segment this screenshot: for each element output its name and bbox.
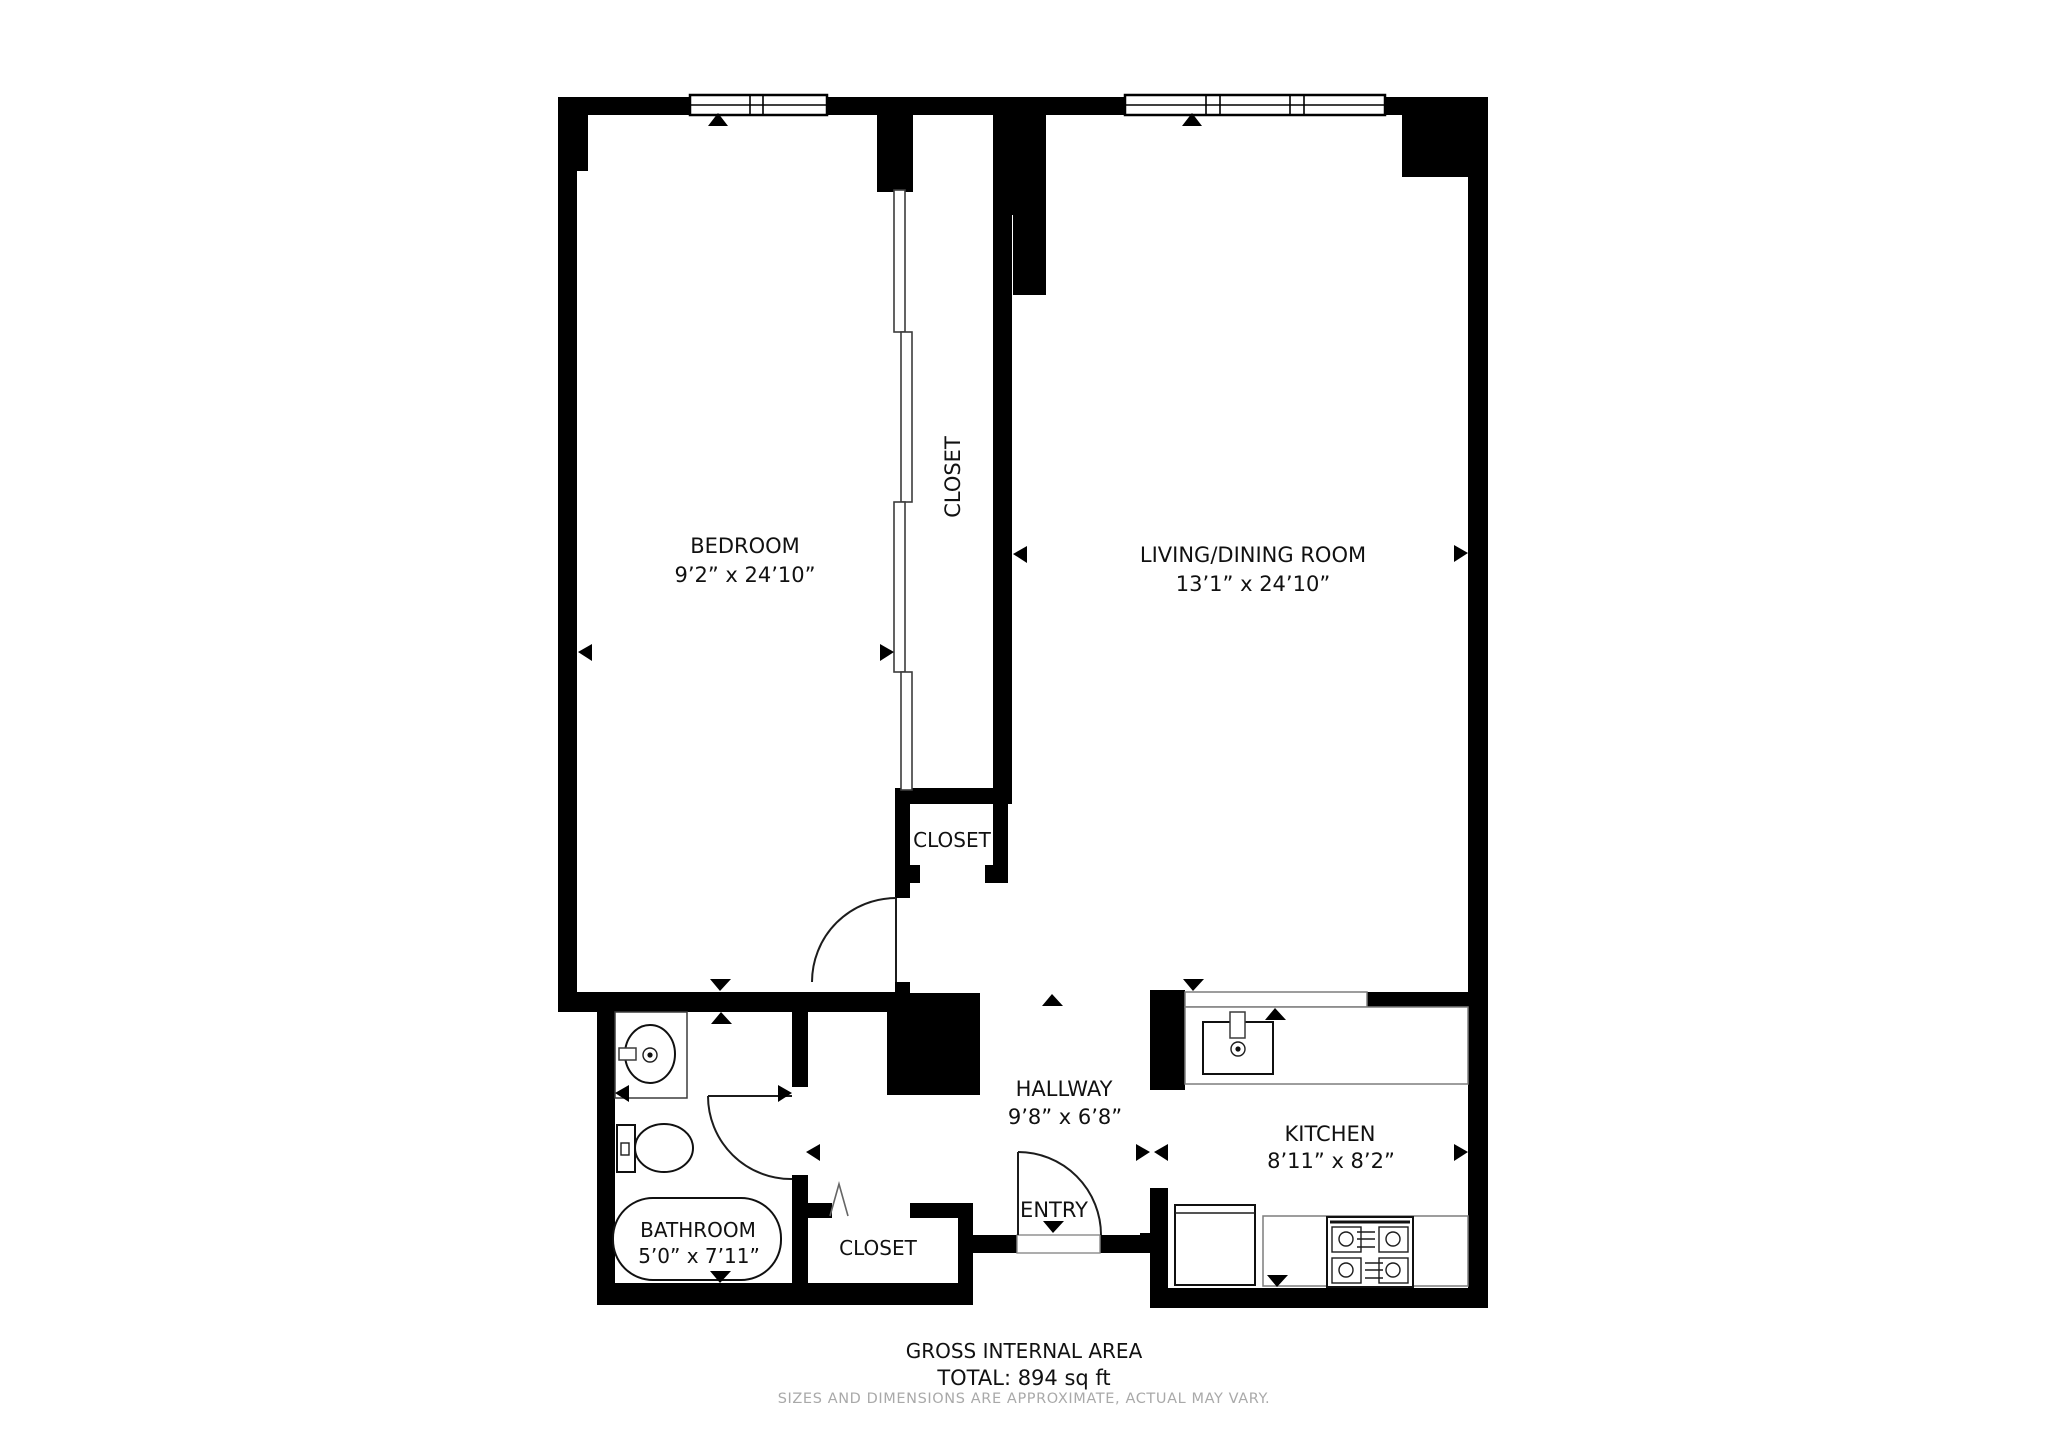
wall-bathroom-right-lower bbox=[792, 1175, 808, 1285]
closet-entry-label: CLOSET bbox=[839, 1236, 917, 1260]
closet-sliding-doors bbox=[894, 190, 912, 790]
arrow-hallway-bottom bbox=[1043, 1221, 1064, 1233]
wall-closet-mid-stub-left bbox=[905, 865, 920, 883]
wall-left-pad bbox=[558, 97, 588, 171]
bedroom-dims: 9’2” x 24’10” bbox=[674, 563, 815, 587]
wall-top-middle bbox=[827, 97, 1125, 115]
wall-left bbox=[558, 97, 577, 1010]
wall-bathroom-left bbox=[597, 1012, 615, 1305]
toilet-tank bbox=[617, 1125, 635, 1172]
living-room-dims: 13’1” x 24’10” bbox=[1176, 572, 1330, 596]
kitchen-label: KITCHEN bbox=[1285, 1122, 1376, 1146]
floorplan-page: BEDROOM 9’2” x 24’10” LIVING/DINING ROOM… bbox=[0, 0, 2048, 1448]
floorplan-drawing: BEDROOM 9’2” x 24’10” LIVING/DINING ROOM… bbox=[0, 0, 2048, 1448]
arrow-kitchen-right bbox=[1454, 1144, 1468, 1161]
wall-entrycloset-top-left bbox=[808, 1203, 832, 1218]
gross-area-title: GROSS INTERNAL AREA bbox=[906, 1339, 1143, 1363]
kitchen-dims: 8’11” x 8’2” bbox=[1267, 1149, 1395, 1173]
wall-entrycloset-right bbox=[958, 1203, 973, 1288]
arrow-living-bottom bbox=[1183, 979, 1204, 991]
living-room-window bbox=[1125, 95, 1385, 115]
arrow-hallway-left bbox=[806, 1144, 820, 1161]
refrigerator bbox=[1175, 1205, 1255, 1285]
wall-entry-connector bbox=[973, 1235, 1017, 1253]
wall-closet-right bbox=[993, 215, 1012, 804]
wall-bathroom-right-upper bbox=[792, 1012, 808, 1087]
wall-right bbox=[1468, 97, 1488, 1308]
entry-label: ENTRY bbox=[1020, 1198, 1088, 1222]
bathroom-dims: 5’0” x 7’11” bbox=[638, 1244, 760, 1268]
kitchen-passthrough bbox=[1185, 992, 1367, 1007]
arrow-hallway-kitchen-b bbox=[1154, 1144, 1168, 1161]
closet-tall-label: CLOSET bbox=[941, 436, 965, 518]
arrow-hallway-kitchen-a bbox=[1136, 1144, 1150, 1161]
bedroom-label: BEDROOM bbox=[690, 534, 800, 558]
arrow-bathroom-right bbox=[778, 1085, 792, 1102]
wall-kitchen-top-right bbox=[1367, 992, 1468, 1007]
living-room-label: LIVING/DINING ROOM bbox=[1140, 543, 1366, 567]
arrow-hallway-top bbox=[1042, 994, 1063, 1006]
wall-kitchen-left-lower bbox=[1150, 1188, 1168, 1290]
closet-mid-label: CLOSET bbox=[913, 828, 991, 852]
arrow-living-left bbox=[1013, 546, 1027, 563]
closet-door-chevron bbox=[830, 1184, 848, 1216]
bedroom-door-swing bbox=[812, 898, 896, 982]
bathroom-door-swing bbox=[708, 1096, 792, 1179]
arrow-bedroom-right bbox=[880, 644, 894, 661]
closet-sliding-door-panel bbox=[894, 190, 905, 332]
closet-sliding-door-panel bbox=[894, 502, 905, 672]
wall-closet-mid-left bbox=[895, 804, 910, 898]
arrow-bathroom-top bbox=[711, 1012, 732, 1024]
arrow-bedroom-bottom bbox=[710, 979, 731, 991]
wall-closet-right-block2 bbox=[1013, 115, 1046, 295]
sink-drain-dot bbox=[647, 1052, 652, 1057]
footer: GROSS INTERNAL AREA TOTAL: 894 sq ft SIZ… bbox=[778, 1339, 1271, 1407]
closet-sliding-door-panel bbox=[901, 672, 912, 790]
wall-kitchen-left-upper bbox=[1150, 990, 1185, 1090]
gross-area-total: TOTAL: 894 sq ft bbox=[936, 1366, 1110, 1390]
toilet-bowl bbox=[635, 1124, 693, 1172]
wall-closet-stub-top bbox=[877, 115, 913, 192]
bedroom-window bbox=[690, 95, 827, 115]
entry-threshold bbox=[1017, 1235, 1100, 1253]
room-labels: BEDROOM 9’2” x 24’10” LIVING/DINING ROOM… bbox=[638, 436, 1395, 1268]
bathroom-label: BATHROOM bbox=[640, 1218, 756, 1242]
wall-closet-mid-stub-right bbox=[985, 865, 1000, 883]
wall-bathroom-bottom bbox=[597, 1283, 973, 1305]
dimensions-disclaimer: SIZES AND DIMENSIONS ARE APPROXIMATE, AC… bbox=[778, 1391, 1271, 1407]
wall-bedroom-bottom bbox=[558, 992, 898, 1012]
kitchen-faucet-icon bbox=[1230, 1012, 1245, 1038]
wall-kitchen-bottom bbox=[1150, 1288, 1488, 1308]
toilet bbox=[617, 1124, 693, 1172]
stove bbox=[1327, 1217, 1413, 1287]
hallway-label: HALLWAY bbox=[1016, 1077, 1113, 1101]
closet-sliding-door-panel bbox=[901, 332, 912, 502]
faucet-icon bbox=[619, 1048, 636, 1060]
arrow-living-right bbox=[1454, 545, 1468, 562]
kitchen-drain-dot bbox=[1235, 1046, 1240, 1051]
wall-kitchen-stub bbox=[1140, 1233, 1152, 1253]
arrow-bedroom-left bbox=[578, 644, 592, 661]
wall-hall-chunk bbox=[887, 993, 980, 1095]
hallway-dims: 9’8” x 6’8” bbox=[1008, 1105, 1122, 1129]
